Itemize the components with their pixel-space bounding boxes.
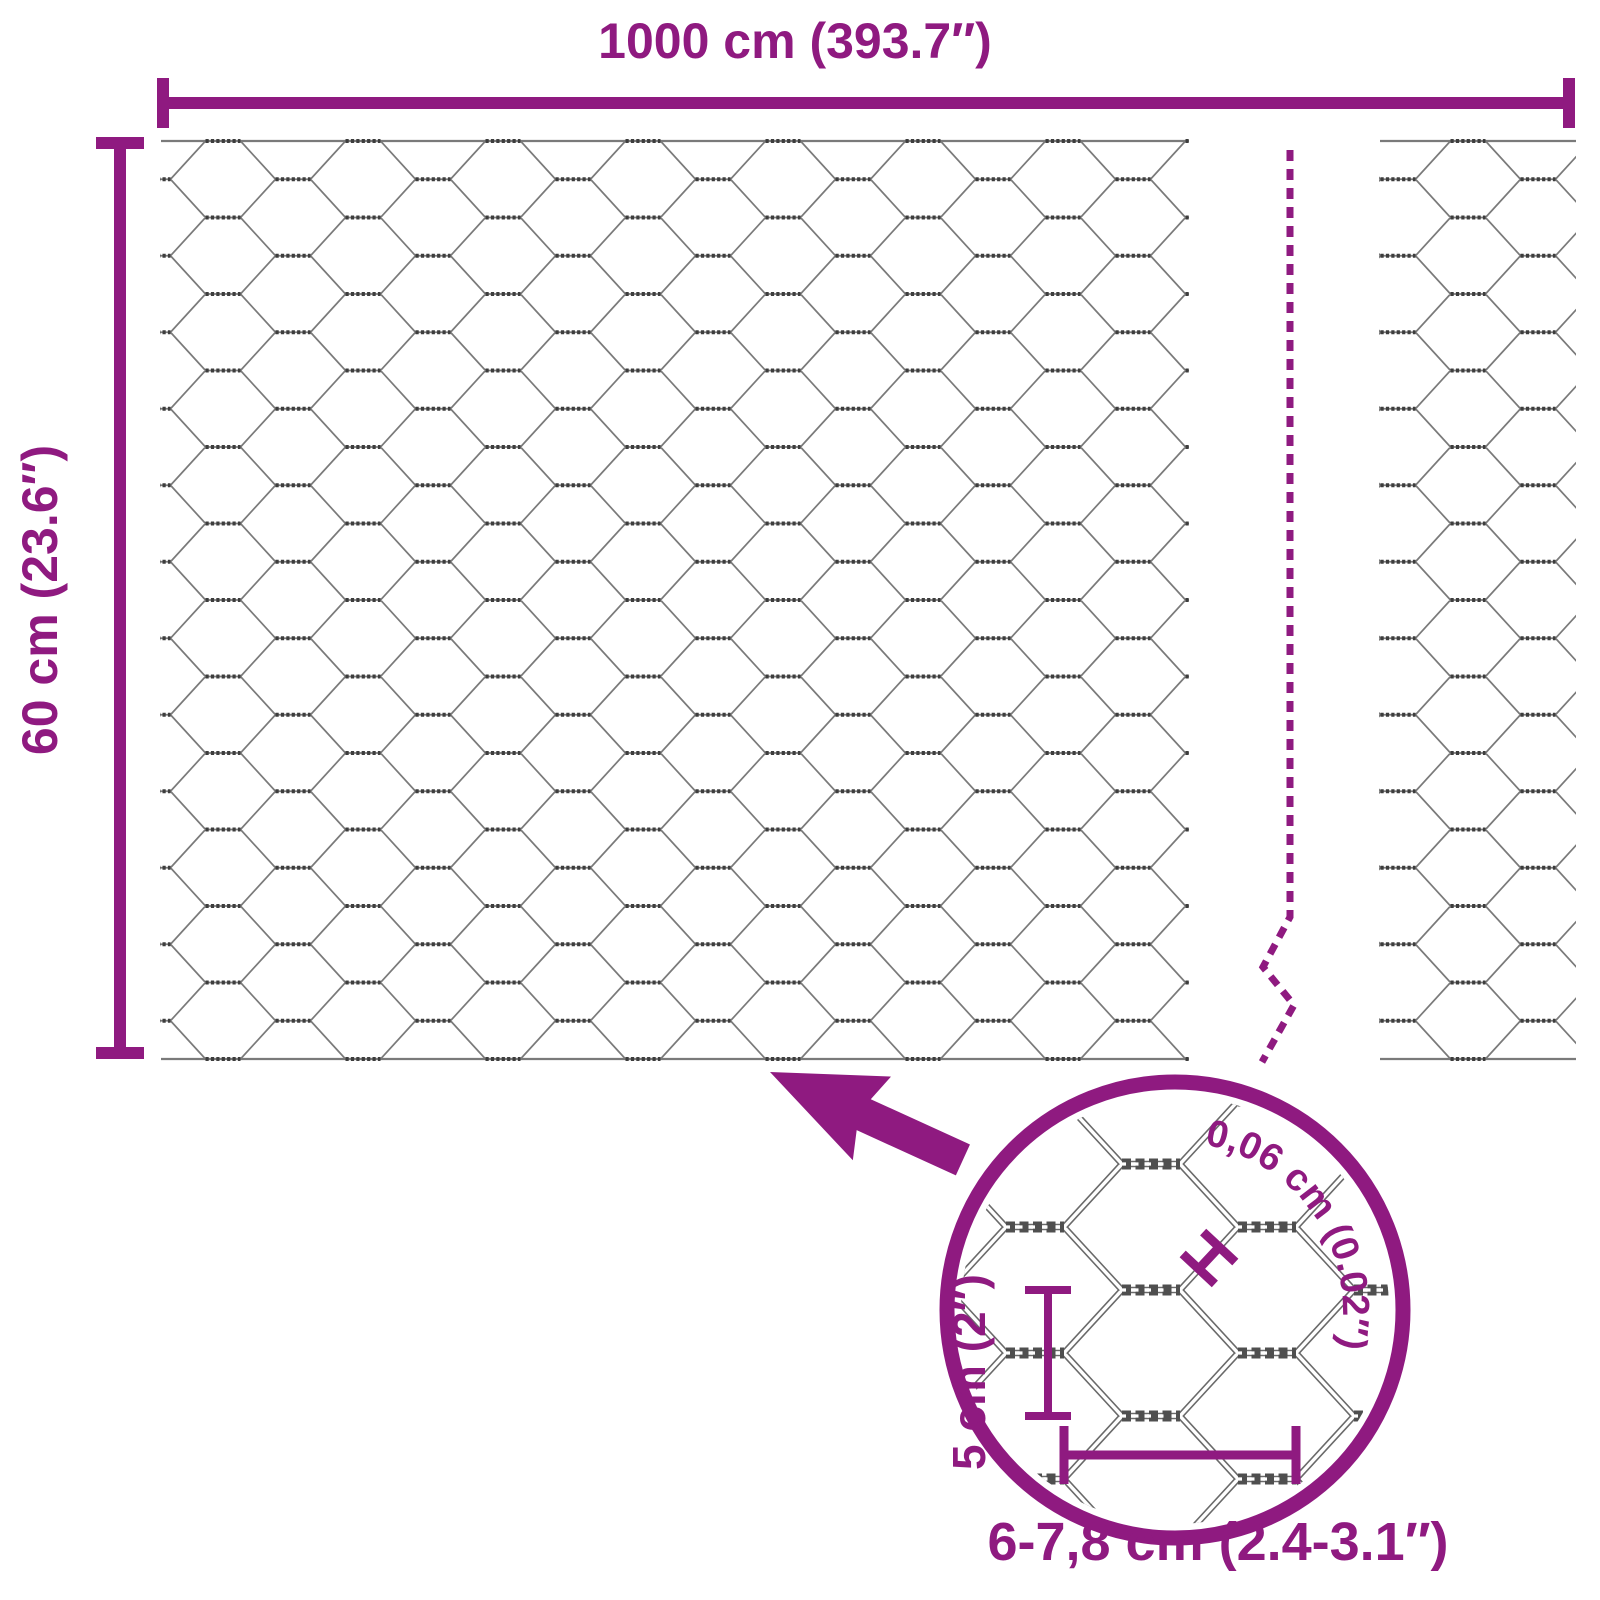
diagram-canvas: 1000 cm (393.7″) 60 cm (23.6″) 0,06 cm (… — [0, 0, 1600, 1600]
mesh-width-label: 6-7,8 cm (2.4-3.1″) — [987, 1512, 1448, 1572]
dimension-width-line — [163, 78, 1569, 128]
magnifier-background — [954, 1089, 1396, 1531]
wire-mesh-continuation — [1276, 141, 1600, 1059]
wire-mesh-main — [31, 141, 1326, 1059]
mesh-wire-path — [66, 141, 1291, 1059]
magnifier-arrow-icon — [751, 1030, 982, 1202]
dimension-width: 1000 cm (393.7″) — [163, 13, 1569, 128]
total-width-label: 1000 cm (393.7″) — [598, 13, 992, 69]
mesh-height-label: 5 cm (2″) — [943, 1274, 995, 1470]
dimension-height-line — [96, 143, 144, 1053]
dimension-height: 60 cm (23.6″) — [12, 143, 144, 1053]
total-height-label: 60 cm (23.6″) — [12, 445, 68, 755]
mesh-wire-path — [1276, 141, 1600, 1059]
break-line — [1262, 150, 1294, 1062]
magnifier-circle: 0,06 cm (0.02″) 5 cm (2″) 6-7,8 cm (2.4-… — [600, 1038, 1600, 1600]
product-dimension-diagram: 1000 cm (393.7″) 60 cm (23.6″) 0,06 cm (… — [0, 0, 1600, 1600]
